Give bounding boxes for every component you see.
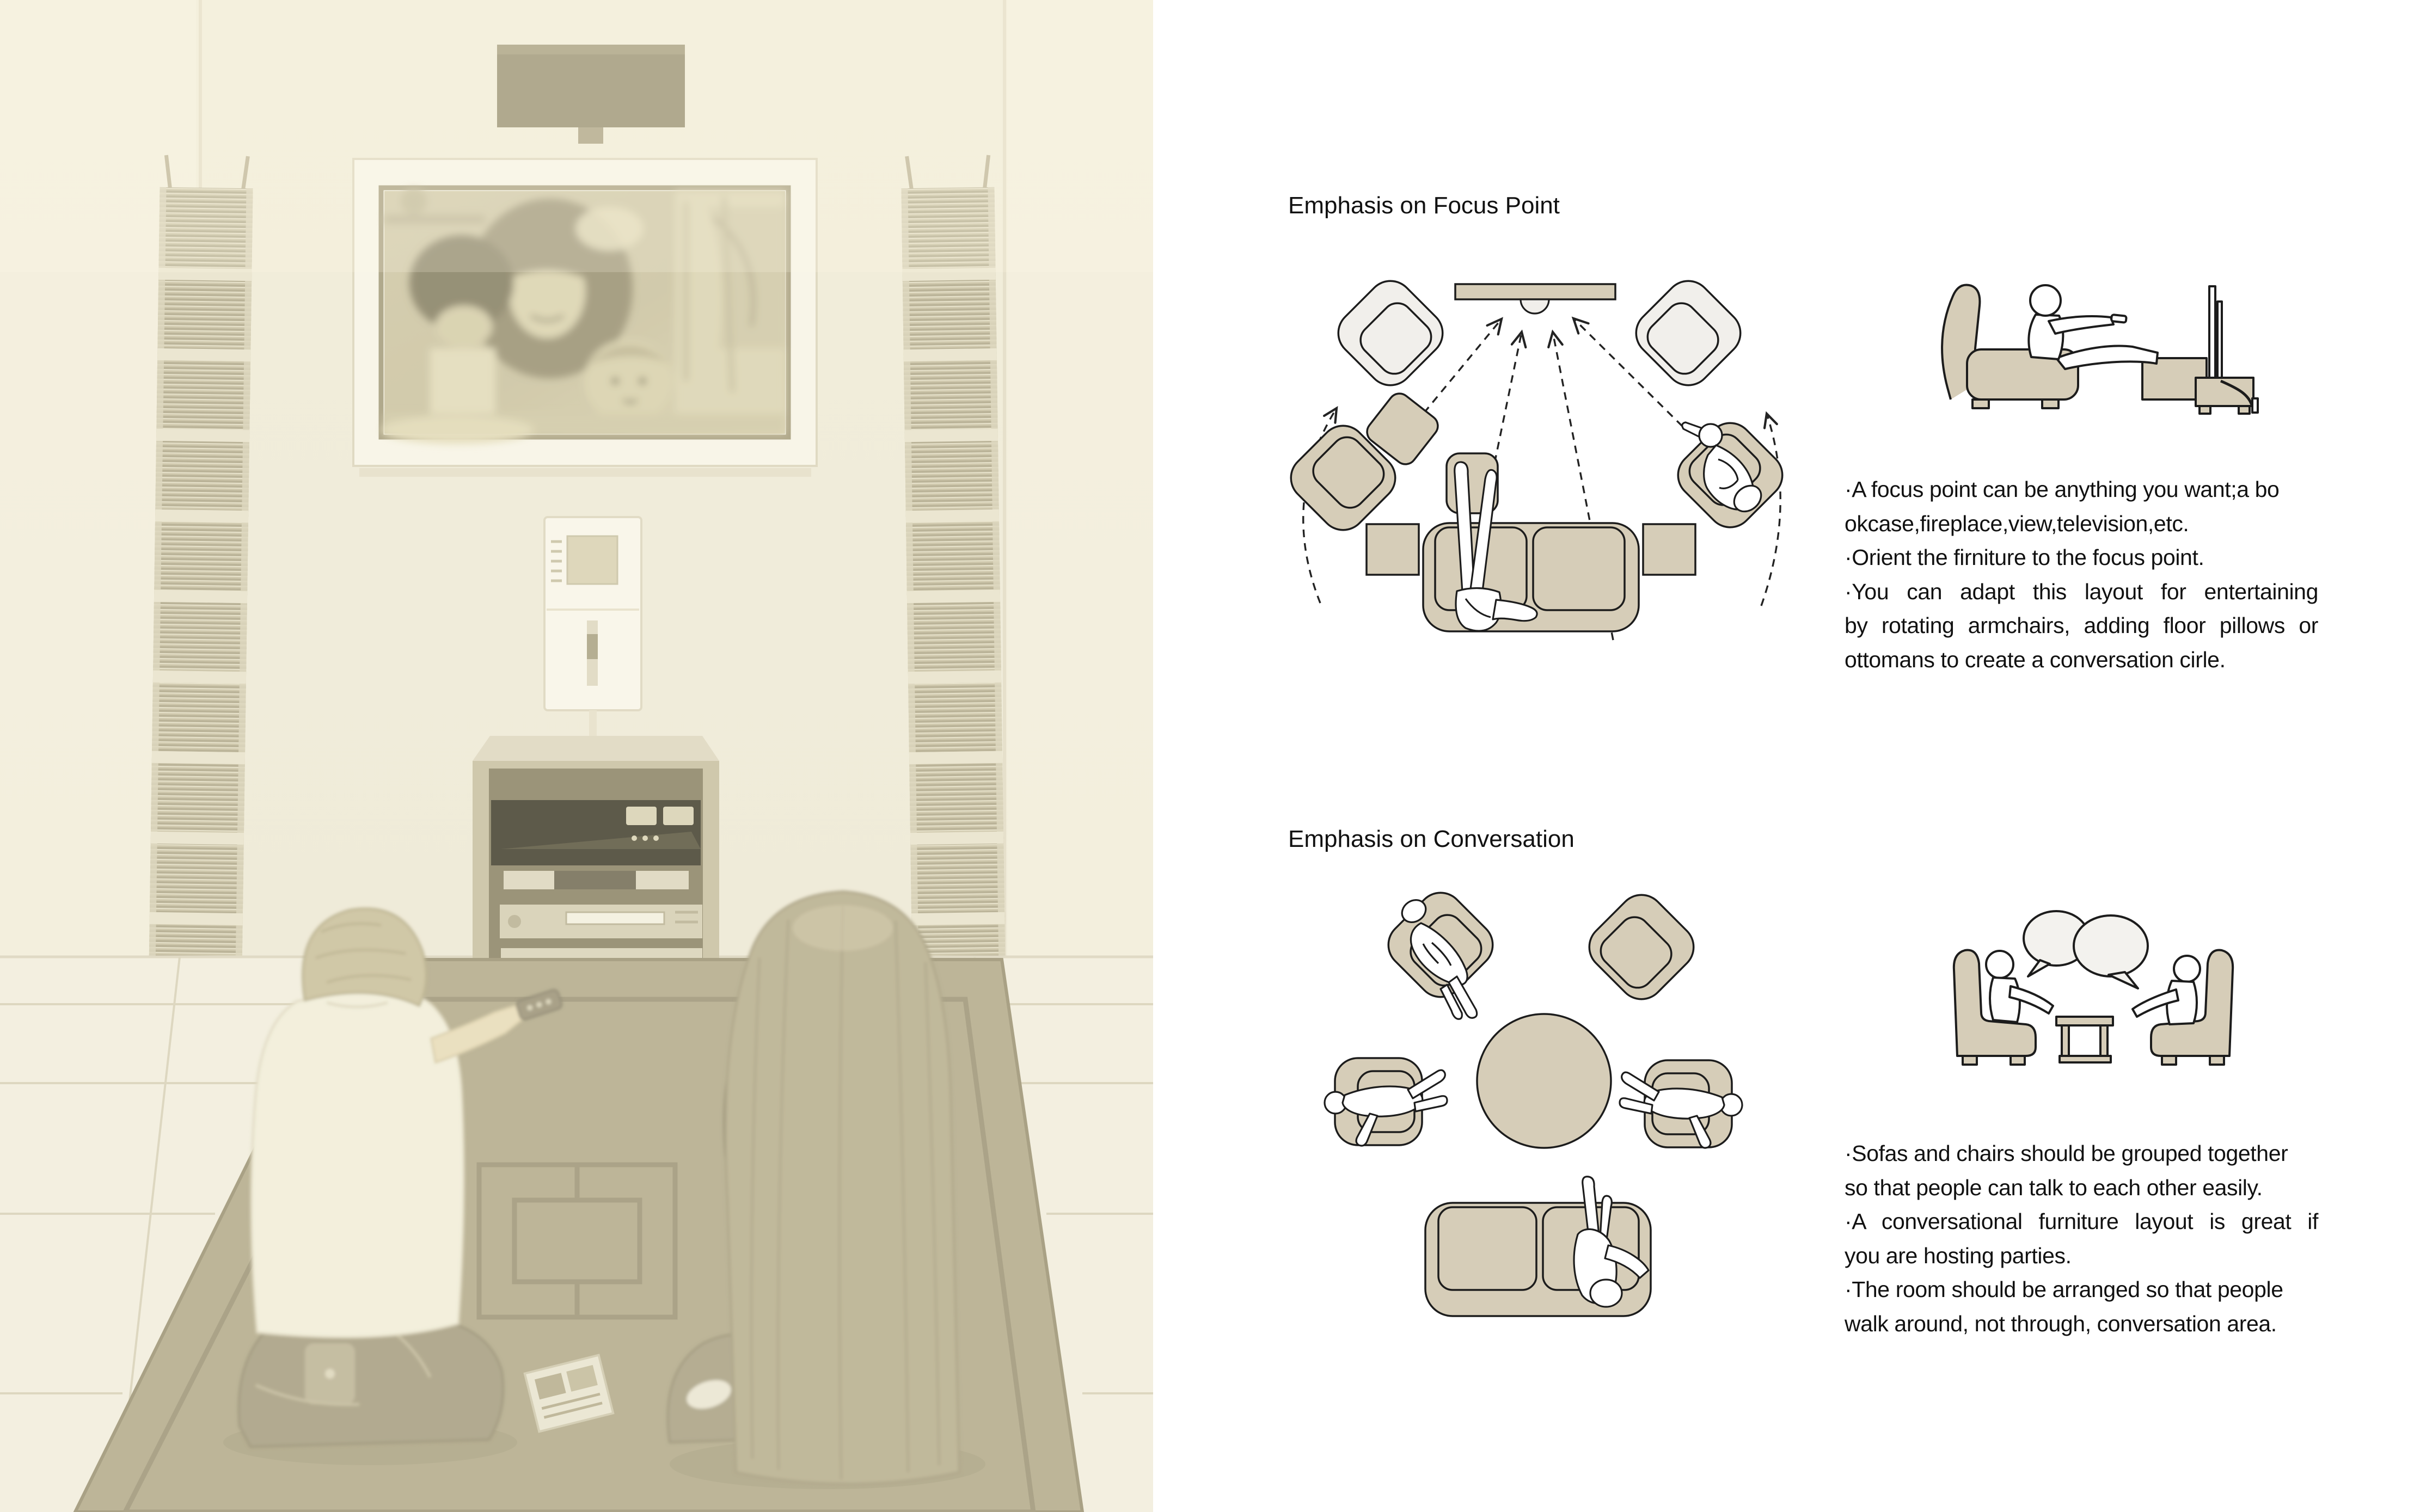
living-room-photo — [0, 0, 1153, 1512]
section-title-conversation: Emphasis on Conversation — [1288, 825, 1574, 853]
note-line: ·A focus point can be anything you want;… — [1845, 472, 2318, 507]
tv-focus-bar-icon — [1455, 284, 1615, 314]
focus-notes: ·A focus point can be anything you want;… — [1845, 472, 2318, 677]
note-line: okcase,fireplace,view,television,etc. — [1845, 507, 2318, 541]
section-title-focus: Emphasis on Focus Point — [1288, 192, 1560, 220]
tv-side-icon — [2196, 286, 2258, 414]
armchair-top-icon — [1329, 272, 1452, 395]
living-room-photo-art — [0, 0, 1153, 1512]
armchair-top-icon — [1580, 886, 1703, 1009]
conversation-diagram: .limb2{fill:#ffffff;stroke:#1c1c1c;strok… — [1301, 886, 1786, 1349]
conversation-notes: ·Sofas and chairs should be grouped toge… — [1845, 1136, 2318, 1341]
side-table-icon — [1367, 524, 1419, 575]
note-line: so that people can talk to each other ea… — [1845, 1171, 2318, 1205]
speech-bubble-icon — [2074, 915, 2148, 976]
note-line: you are hosting parties. — [1845, 1239, 2318, 1273]
recliner-side-icon — [1903, 251, 2262, 415]
side-table-icon — [2056, 1017, 2113, 1025]
two-people-talking-illustration — [1919, 899, 2268, 1068]
note-line: ·A conversational furniture layout is gr… — [1845, 1204, 2318, 1239]
armchair-top-icon — [1627, 272, 1750, 395]
note-line: ottomans to create a conversation cirle. — [1845, 643, 2318, 677]
note-line: by rotating armchairs, adding floor pill… — [1845, 609, 2318, 643]
focus-point-diagram: .dash{stroke:#232323;stroke-width:3.4;fi… — [1274, 266, 1818, 679]
note-line: walk around, not through, conversation a… — [1845, 1307, 2318, 1341]
note-line: ·Sofas and chairs should be grouped toge… — [1845, 1136, 2318, 1171]
book-spread: Emphasis on Focus Point .dash{stroke:#23… — [0, 0, 2420, 1512]
note-line: ·Orient the firniture to the focus point… — [1845, 540, 2318, 575]
note-line: ·The room should be arranged so that peo… — [1845, 1273, 2318, 1307]
coffee-table-icon — [1477, 1014, 1611, 1148]
side-table-icon — [1643, 524, 1695, 575]
remote-icon — [2111, 315, 2127, 323]
note-line: ·You can adapt this layout for entertain… — [1845, 575, 2318, 609]
